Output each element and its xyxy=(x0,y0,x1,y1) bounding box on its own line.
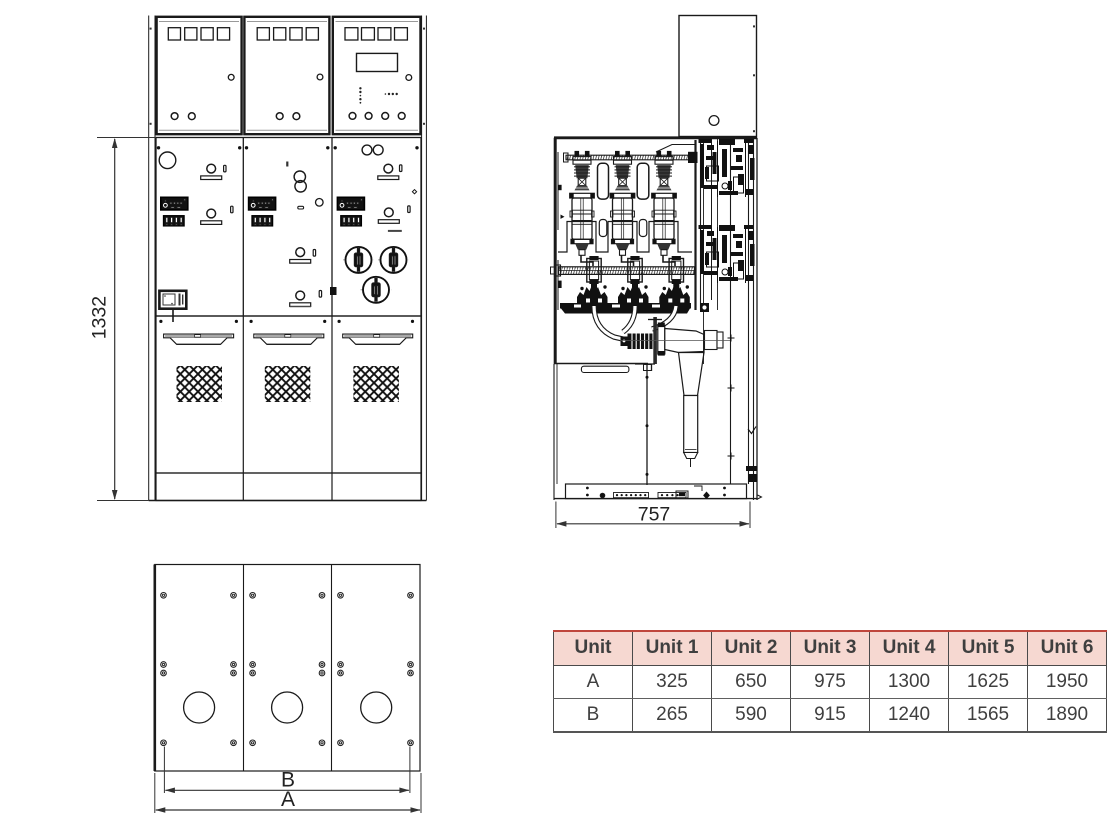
svg-text:757: 757 xyxy=(638,504,671,526)
svg-text:A: A xyxy=(281,788,295,811)
svg-text:1332: 1332 xyxy=(89,296,111,339)
